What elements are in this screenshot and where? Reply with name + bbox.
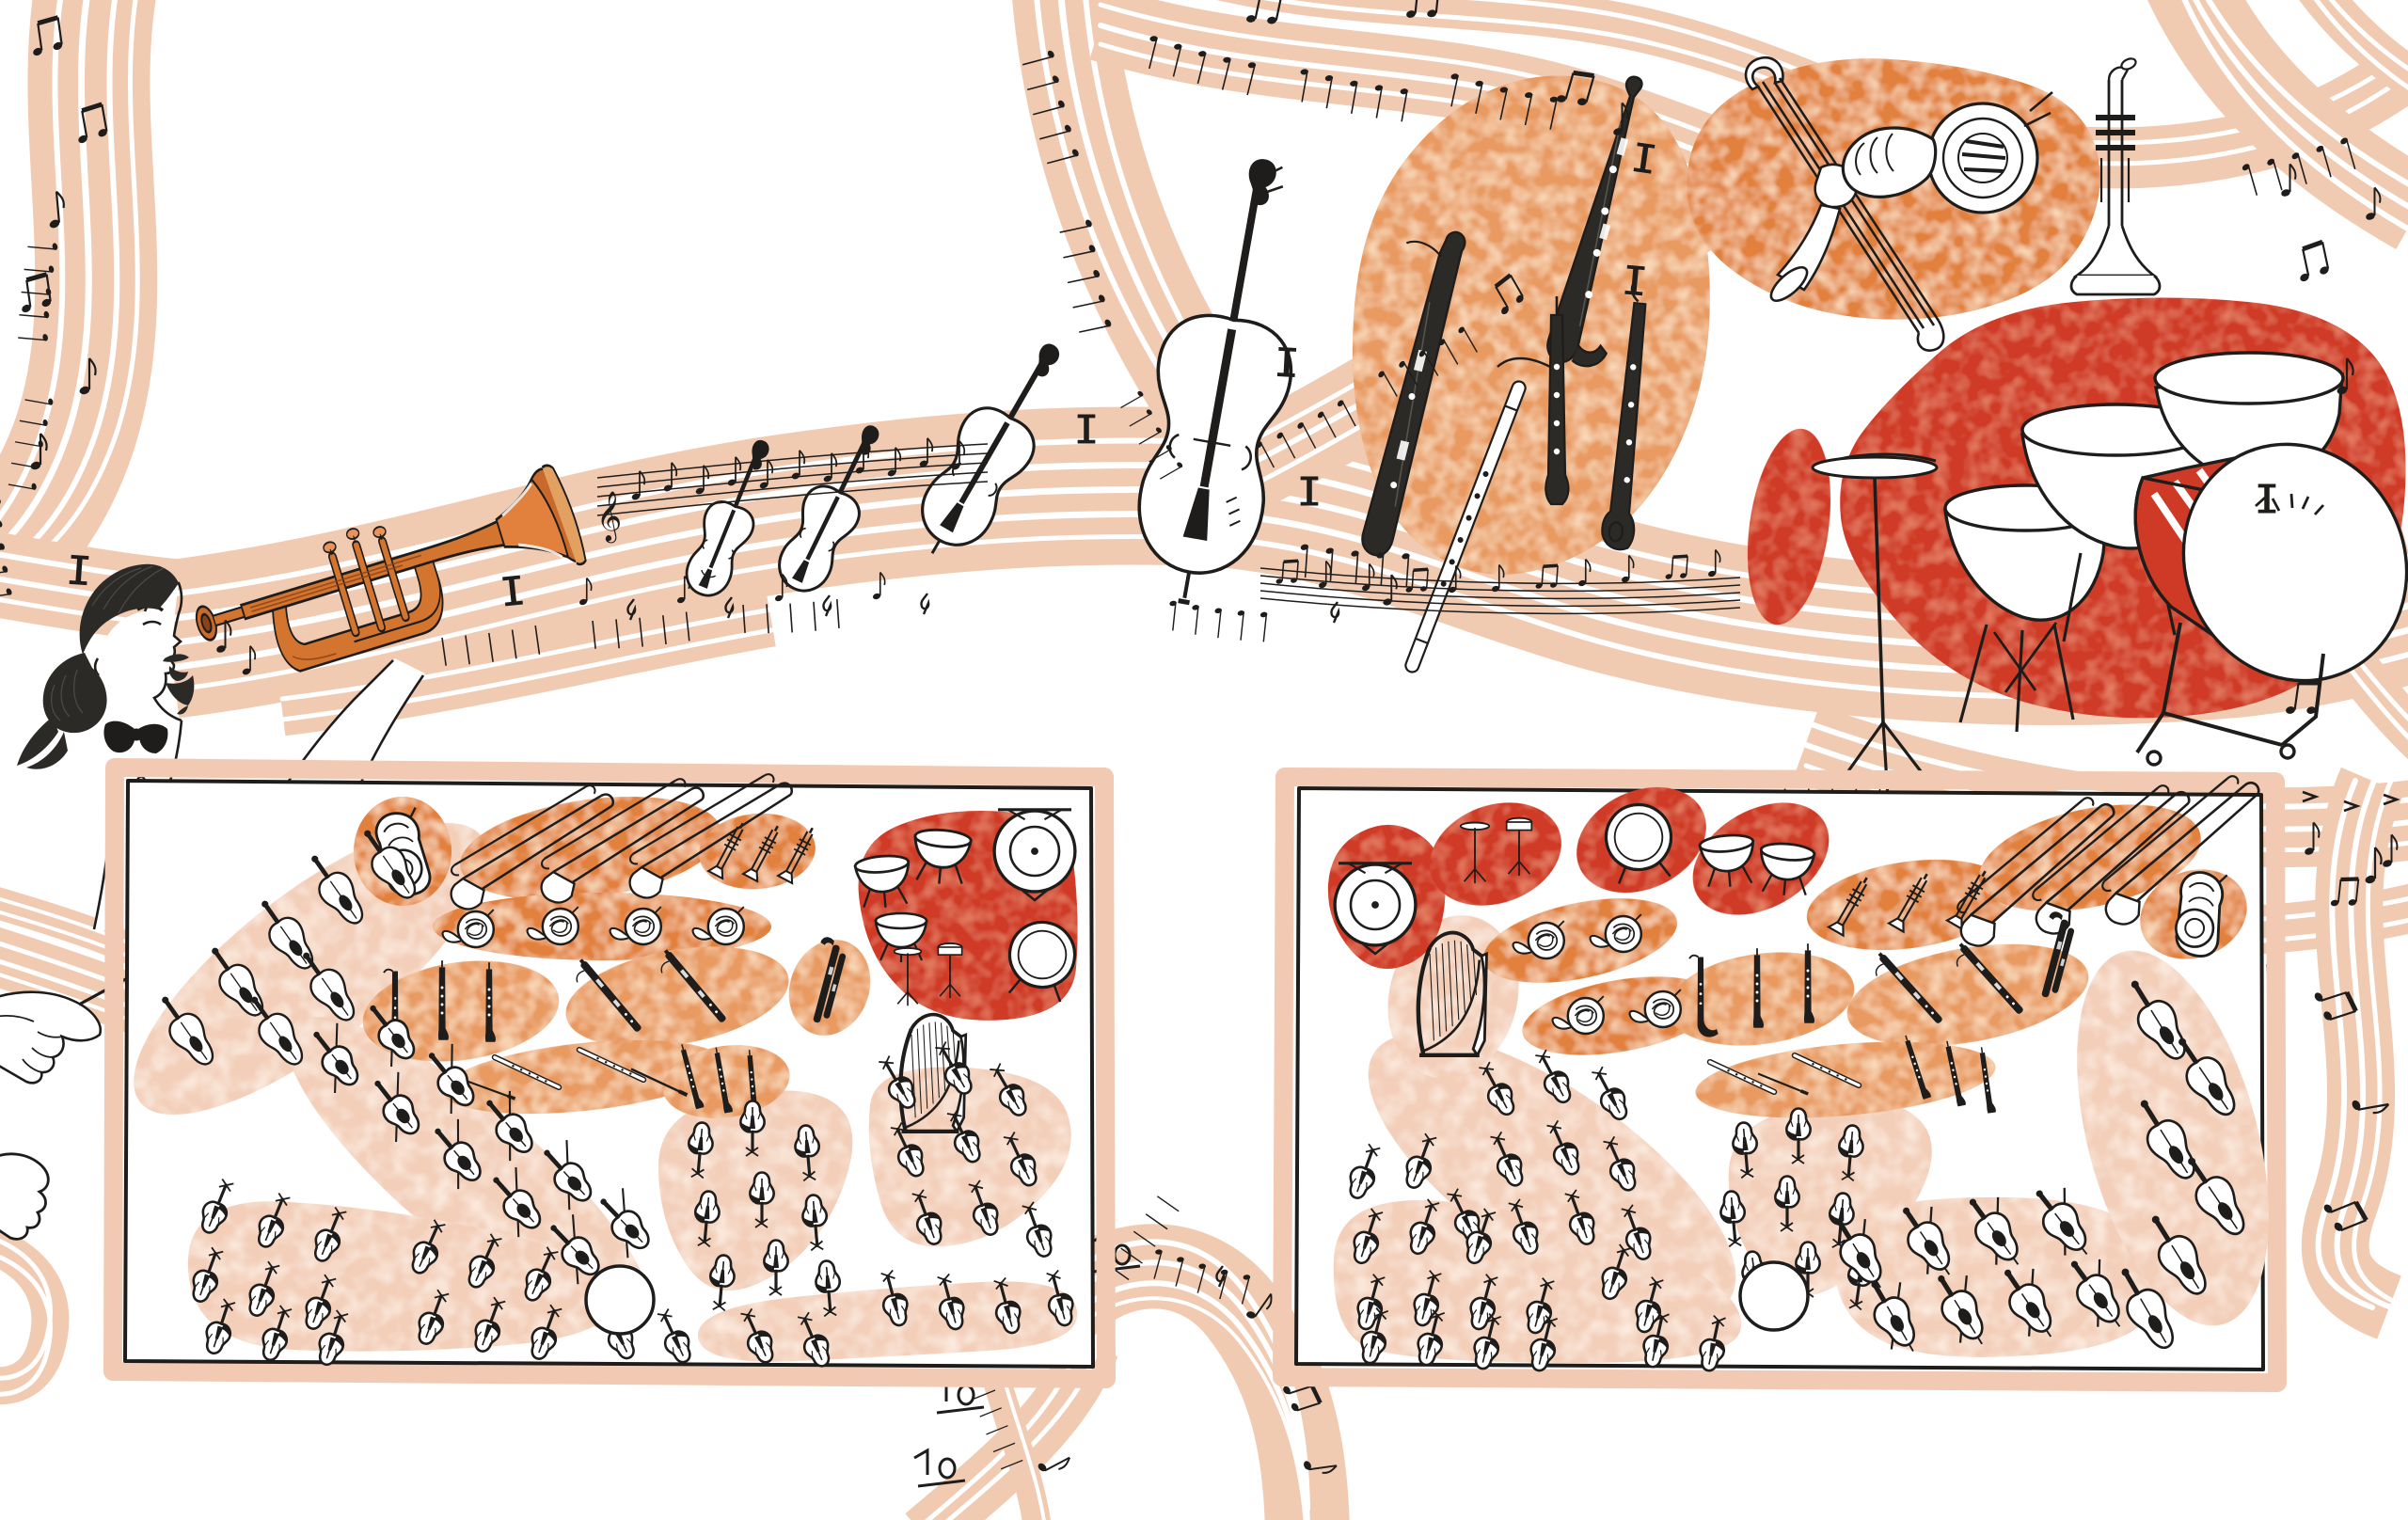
svg-text:𝄞: 𝄞 [596,491,622,543]
